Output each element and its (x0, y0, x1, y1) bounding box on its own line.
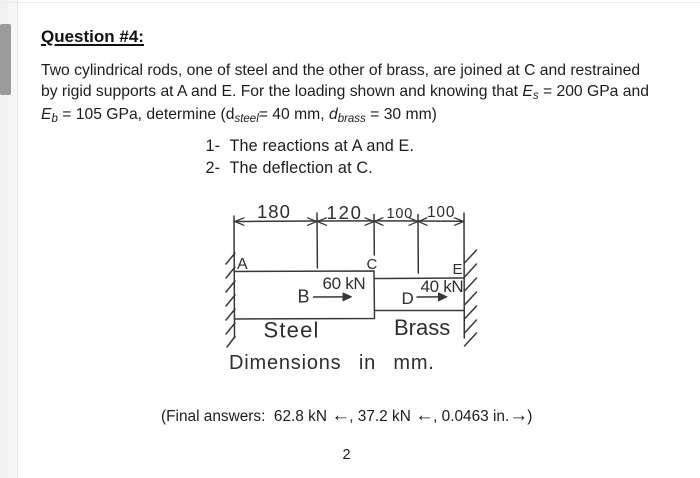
svg-text:A: A (237, 256, 248, 273)
svg-text:100: 100 (387, 206, 414, 222)
svg-text:E: E (453, 261, 463, 278)
svg-text:60 kN: 60 kN (323, 274, 366, 293)
svg-text:40 kN: 40 kN (421, 277, 464, 296)
svg-text:180: 180 (257, 201, 291, 222)
svg-text:Steel: Steel (264, 318, 320, 343)
svg-text:C: C (367, 256, 378, 273)
svg-text:Dimensions in mm.: Dimensions in mm. (229, 352, 435, 374)
svg-text:D: D (402, 289, 414, 308)
svg-text:120: 120 (327, 202, 363, 223)
svg-text:B: B (298, 287, 310, 307)
svg-text:Brass: Brass (394, 315, 450, 340)
svg-text:100: 100 (427, 204, 455, 221)
